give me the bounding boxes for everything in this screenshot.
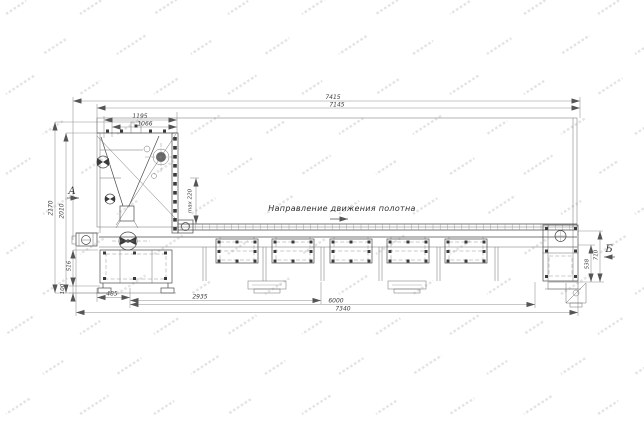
machine-drawing: 7415 7145 1195 1066 2170 2010 max 220 51… <box>0 0 644 430</box>
view-a-label: А <box>67 186 76 197</box>
table-module <box>445 237 487 263</box>
dim-height-frame-label: 2010 <box>59 203 66 218</box>
view-labels: А Б <box>67 186 615 257</box>
table-module <box>216 237 258 263</box>
dim-left-foot-height-label: 100 <box>60 283 66 294</box>
direction-annotation: Направление движения полотна <box>268 204 415 219</box>
technical-drawing-page: 7415 7145 1195 1066 2170 2010 max 220 51… <box>0 0 644 430</box>
support-foot <box>388 281 426 293</box>
dim-bottom-frame-length-label: 6000 <box>328 298 343 305</box>
table-module <box>330 237 372 263</box>
dim-max-gap-label: max 220 <box>188 188 194 213</box>
dim-height-overall-label: 2170 <box>48 200 55 215</box>
head-base-unit <box>96 232 176 293</box>
view-b-label: Б <box>604 244 613 255</box>
conveyor-table <box>76 224 577 293</box>
dim-right-height-outer-label: 710 <box>594 249 600 260</box>
dim-bottom-second-label: 2935 <box>192 294 207 301</box>
dim-left-table-height-label: 516 <box>67 260 73 271</box>
dim-bottom-first-label: 485 <box>106 291 118 298</box>
dim-bottom-overall-length-label: 7340 <box>335 306 350 313</box>
dim-hopper-inner-label: 1066 <box>137 121 152 128</box>
hopper-unit <box>97 122 193 233</box>
direction-label: Направление движения полотна <box>268 204 415 213</box>
dim-top-frame-label: 7145 <box>329 102 344 109</box>
table-module <box>387 237 429 263</box>
left-end-unit <box>72 233 97 246</box>
dim-right-height-inner-label: 538 <box>585 258 591 269</box>
dim-top-overall-label: 7415 <box>325 94 340 101</box>
dim-hopper-outer-label: 1195 <box>132 113 147 120</box>
